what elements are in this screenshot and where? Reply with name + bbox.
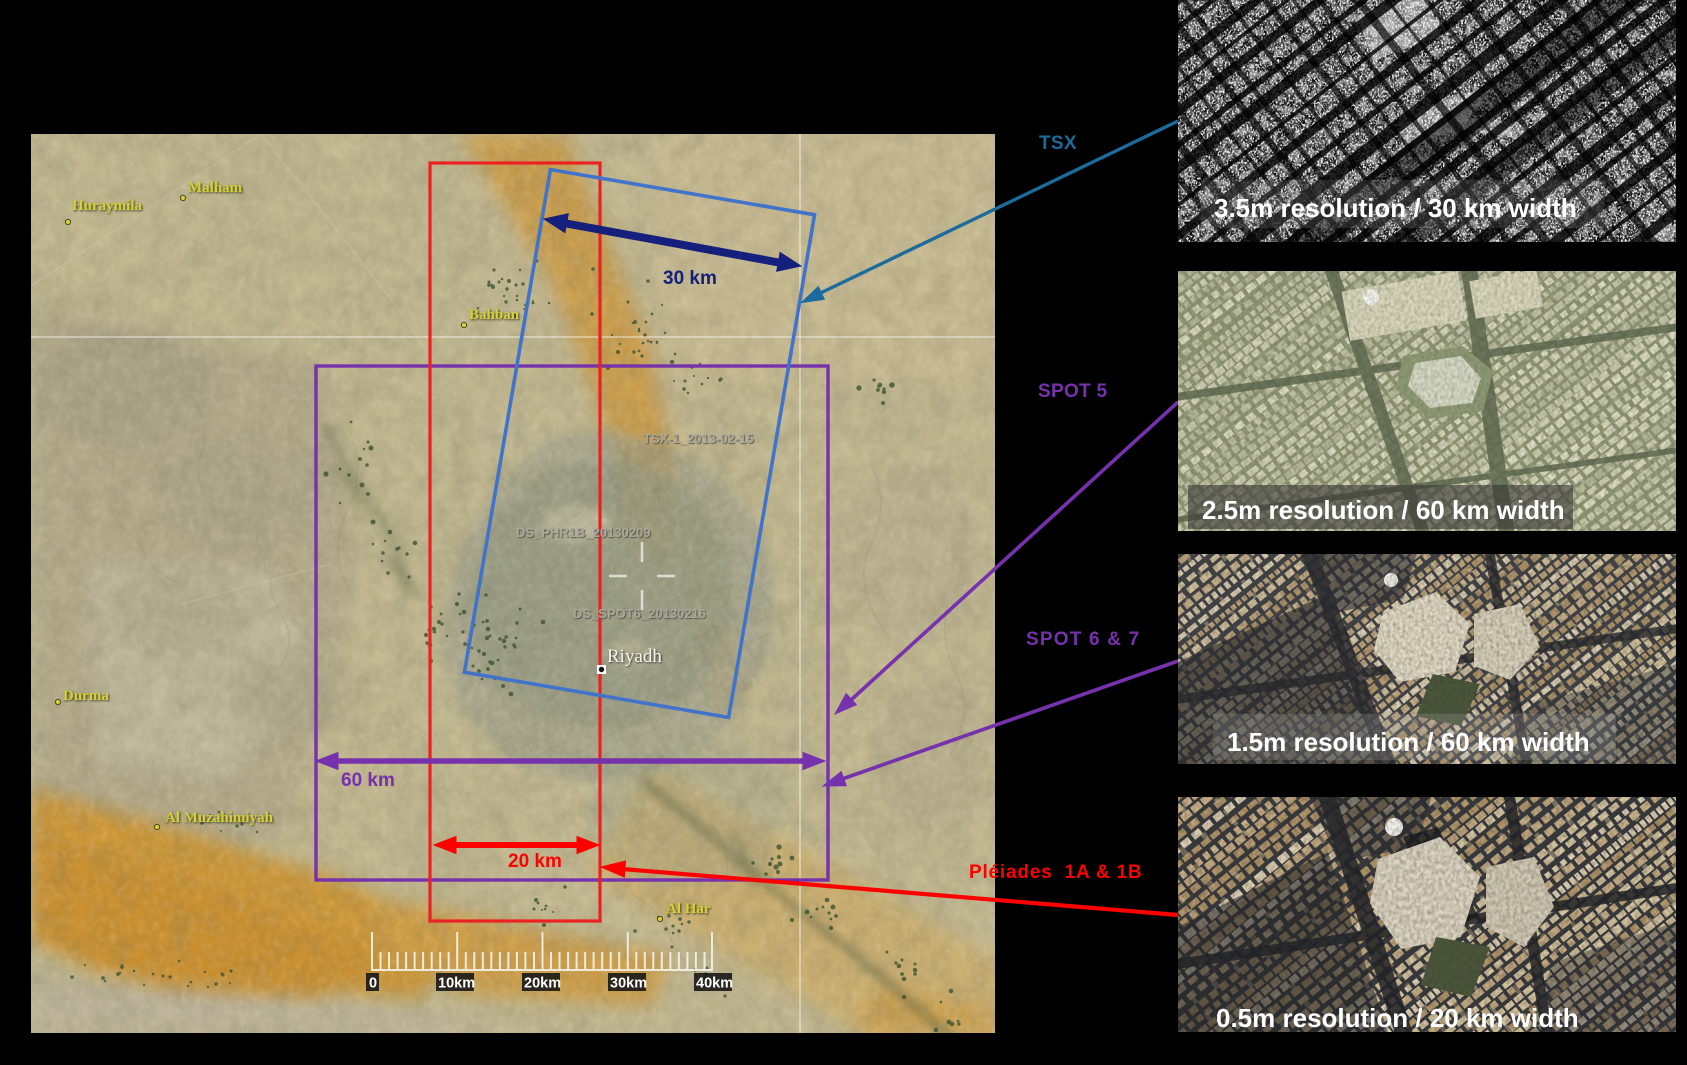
svg-text:0.5m resolution / 20 km width: 0.5m resolution / 20 km width [1216, 1003, 1579, 1032]
svg-text:3.5m resolution / 30 km width: 3.5m resolution / 30 km width [1214, 193, 1577, 223]
svg-text:1.5m resolution / 60 km width: 1.5m resolution / 60 km width [1227, 727, 1590, 757]
svg-text:2.5m resolution / 60 km width: 2.5m resolution / 60 km width [1202, 495, 1565, 525]
